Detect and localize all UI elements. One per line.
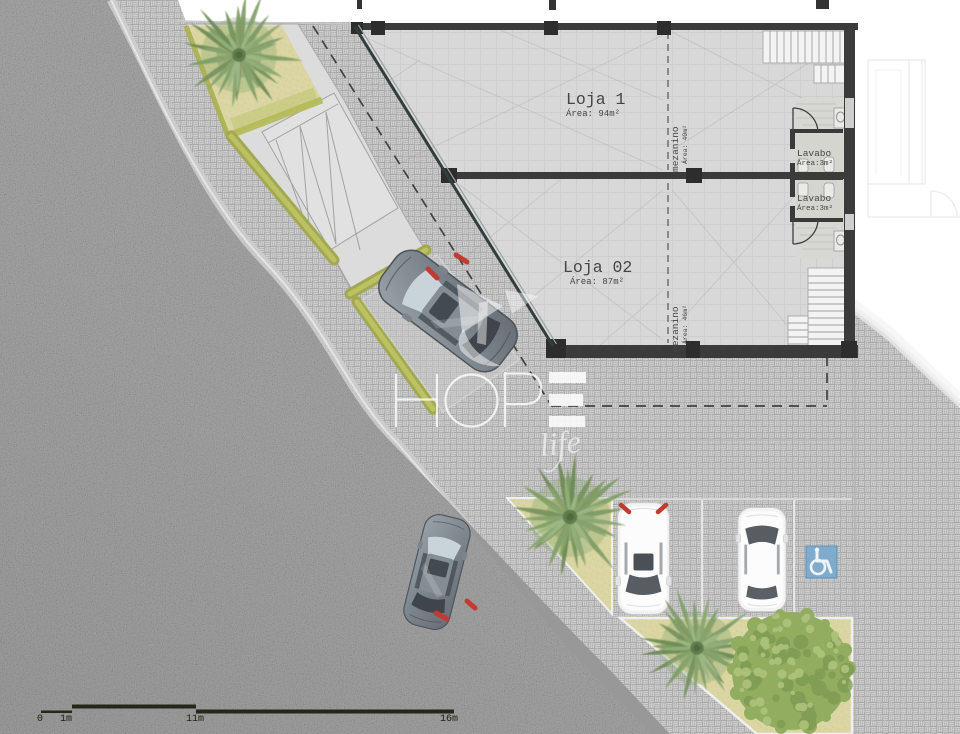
svg-text:1m: 1m	[60, 714, 72, 725]
svg-text:11m: 11m	[186, 714, 204, 725]
svg-text:Lavabo: Lavabo	[797, 148, 832, 159]
svg-text:mezanino: mezanino	[670, 126, 681, 172]
svg-text:16m: 16m	[440, 714, 458, 725]
svg-text:Lavabo: Lavabo	[797, 193, 832, 204]
svg-text:Área:3m²: Área:3m²	[797, 204, 833, 213]
svg-text:0: 0	[37, 714, 43, 725]
svg-text:Loja 02: Loja 02	[563, 258, 632, 277]
svg-text:Área: 87m²: Área: 87m²	[570, 276, 624, 287]
svg-text:Loja 1: Loja 1	[566, 90, 626, 109]
svg-text:life: life	[538, 423, 582, 463]
svg-text:Área:3m²: Área:3m²	[797, 159, 833, 168]
svg-text:Área: 94m²: Área: 94m²	[566, 108, 620, 119]
svg-text:Área: 46m²: Área: 46m²	[681, 305, 689, 344]
svg-text:mezanino: mezanino	[670, 306, 681, 352]
svg-text:Área: 40m²: Área: 40m²	[681, 125, 689, 164]
